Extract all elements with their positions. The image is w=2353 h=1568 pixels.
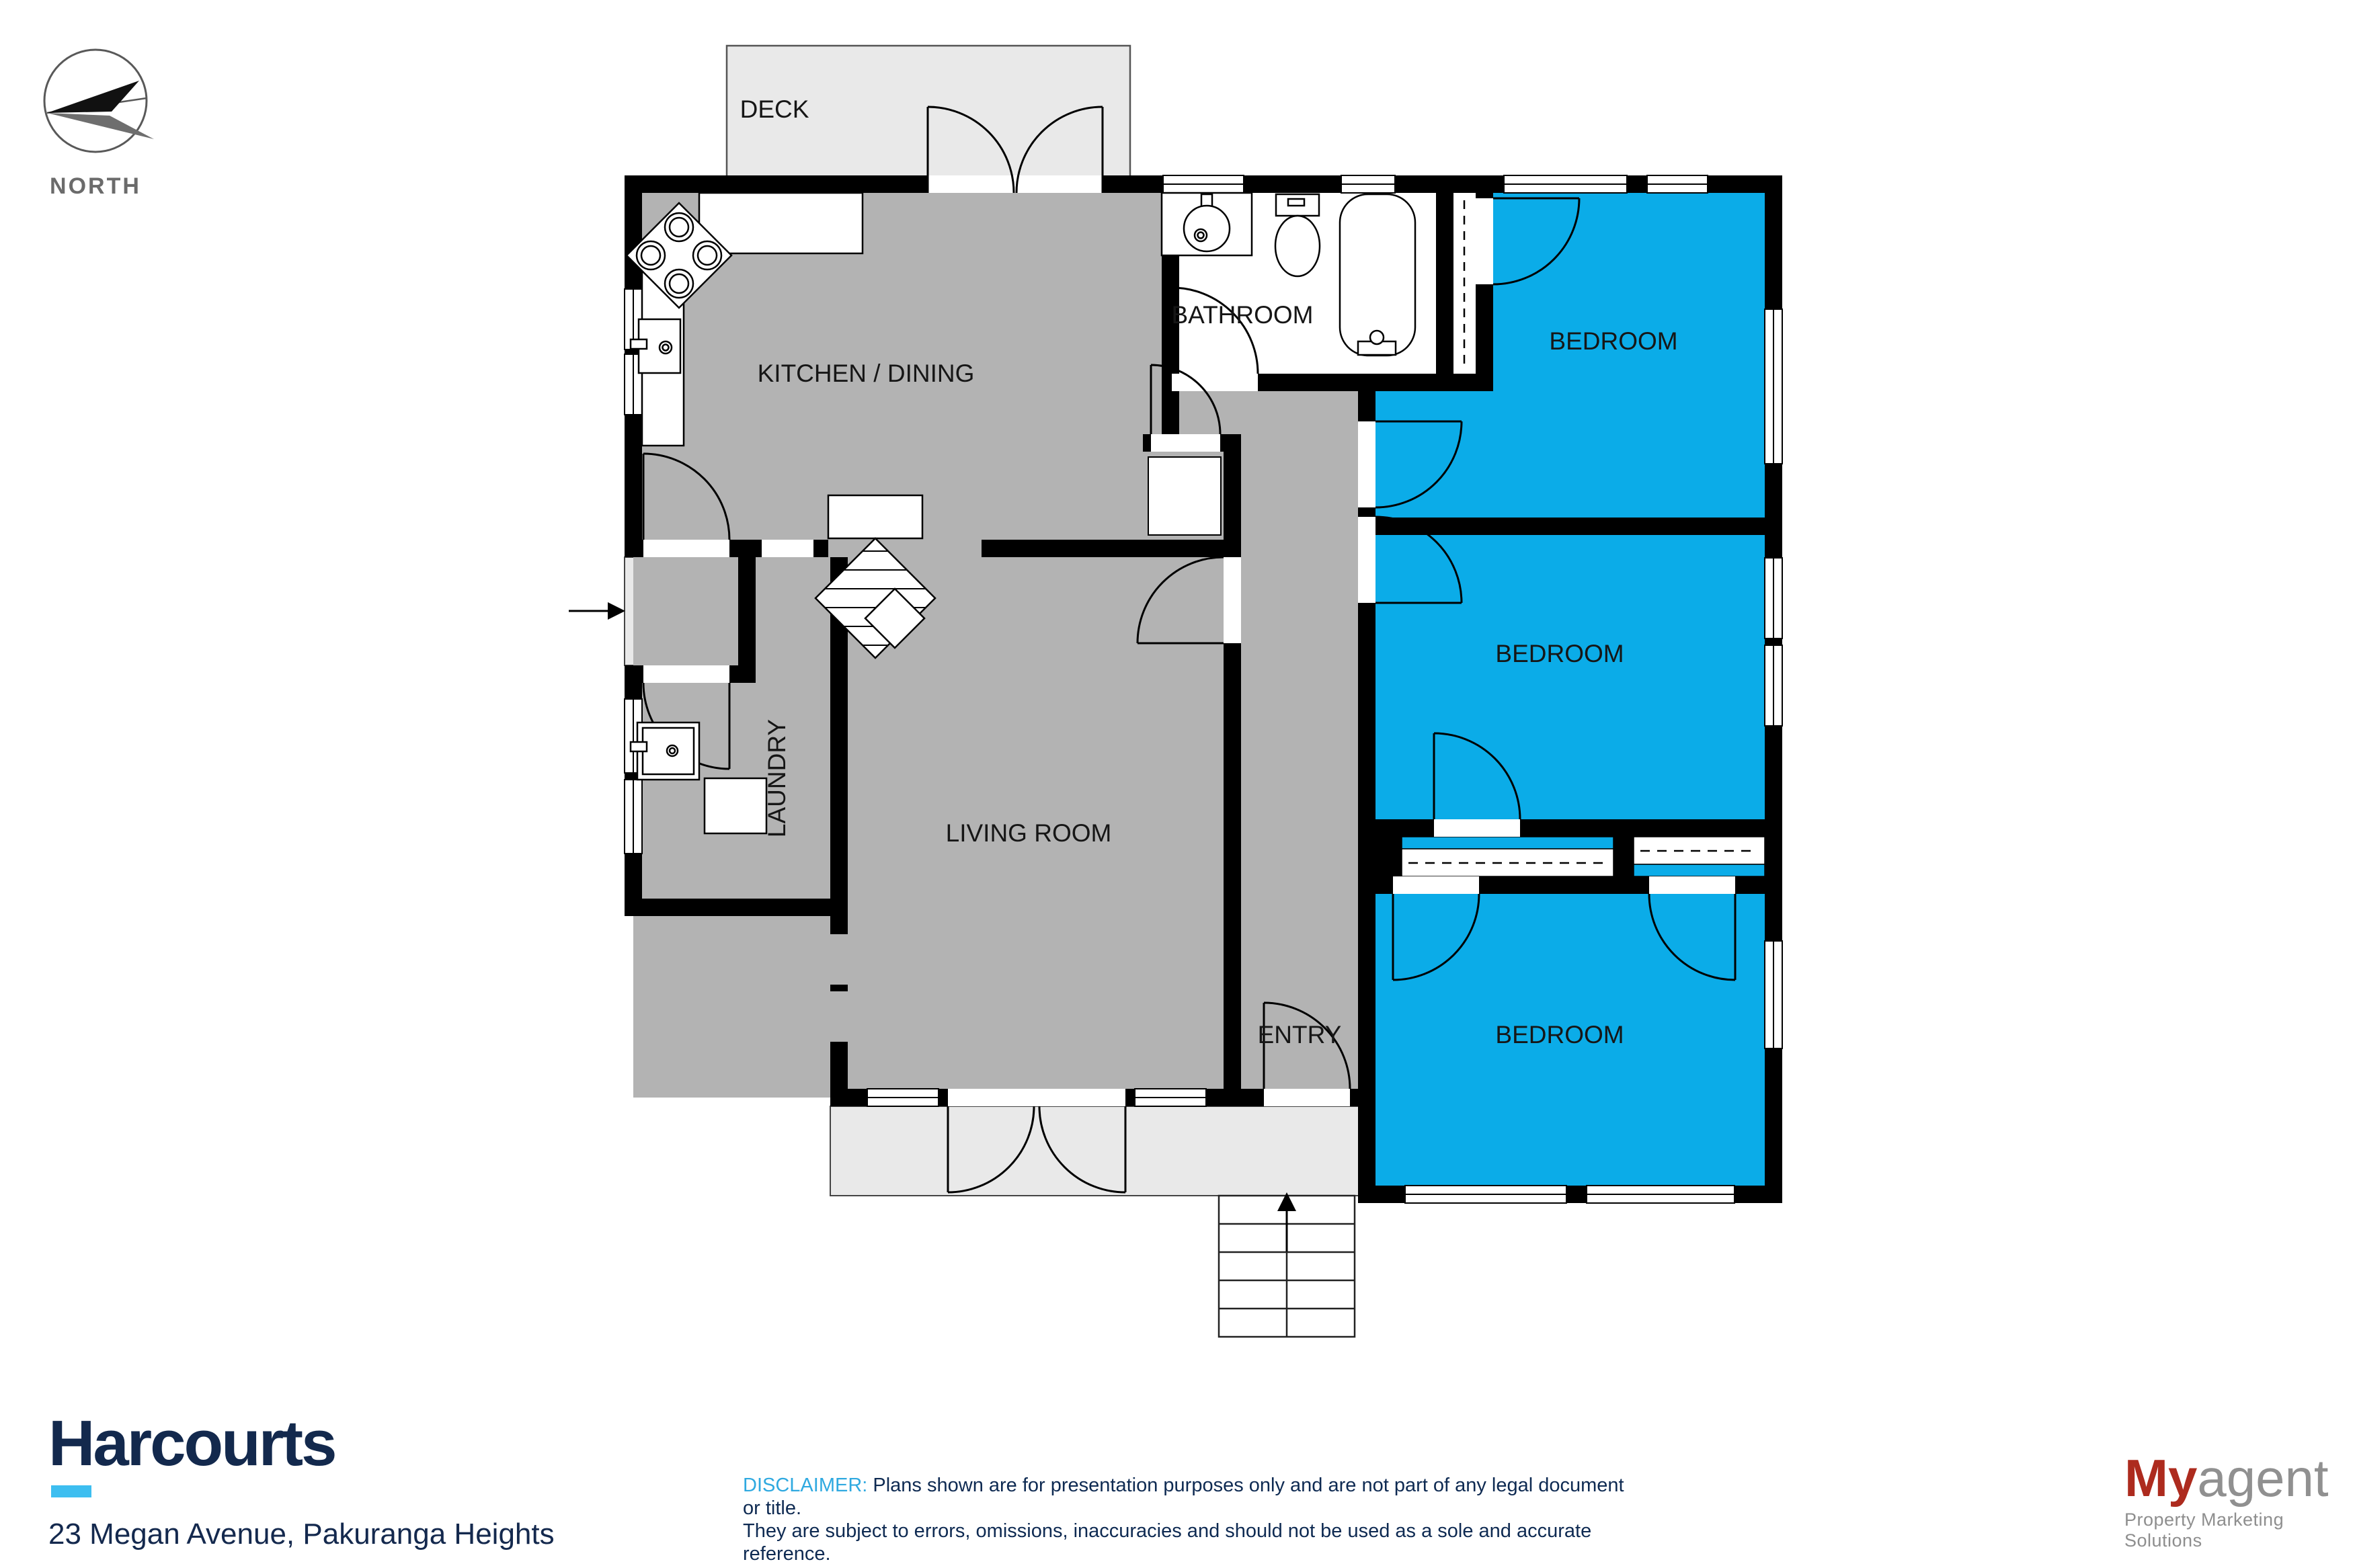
laundry-tap bbox=[631, 742, 647, 751]
disclaimer-line-1: DISCLAIMER: Plans shown are for presenta… bbox=[743, 1474, 1630, 1520]
harcourts-logo: Harcourts bbox=[48, 1411, 555, 1476]
north-compass: NORTH bbox=[44, 50, 154, 199]
disclaimer-label: DISCLAIMER: bbox=[743, 1475, 867, 1496]
kitchen-sink-tap bbox=[631, 339, 647, 349]
toilet-button bbox=[1288, 199, 1304, 206]
living-room-label: LIVING ROOM bbox=[946, 819, 1112, 847]
kitchen-counter-top bbox=[699, 193, 863, 253]
myagent-accent: My bbox=[2124, 1448, 2197, 1508]
washing-machine bbox=[705, 778, 766, 833]
myagent-logo: Myagent Property Marketing Solutions bbox=[2124, 1452, 2353, 1551]
myagent-wordmark: Myagent bbox=[2124, 1452, 2353, 1504]
front-porch bbox=[830, 1106, 1375, 1196]
vanity-basin bbox=[1184, 206, 1230, 251]
hot-water-cupboard bbox=[1148, 457, 1221, 535]
myagent-rest: agent bbox=[2197, 1448, 2328, 1508]
disclaimer: DISCLAIMER: Plans shown are for presenta… bbox=[743, 1474, 1630, 1568]
laundry-label: LAUNDRY bbox=[763, 719, 791, 837]
bathroom-label: BATHROOM bbox=[1171, 301, 1313, 329]
floorplan-drawing: NORTH bbox=[0, 0, 2353, 1568]
myagent-tagline: Property Marketing Solutions bbox=[2124, 1510, 2353, 1551]
deck-label: DECK bbox=[740, 95, 809, 123]
floorplan-page: NORTH bbox=[0, 0, 2353, 1568]
bedroom2-label: BEDROOM bbox=[1495, 640, 1624, 667]
kitchen-label: KITCHEN / DINING bbox=[758, 360, 975, 387]
property-address: 23 Megan Avenue, Pakuranga Heights bbox=[48, 1518, 555, 1551]
disclaimer-line-3: Interested parties should make their own… bbox=[743, 1565, 1630, 1568]
bedroom3-label: BEDROOM bbox=[1495, 1021, 1624, 1048]
harcourts-underline bbox=[51, 1485, 91, 1497]
wardrobe-left-slider bbox=[1402, 837, 1613, 849]
wardrobe-right-slider bbox=[1634, 864, 1765, 876]
bedroom1-label: BEDROOM bbox=[1549, 327, 1677, 355]
north-label: NORTH bbox=[50, 173, 141, 199]
disclaimer-line-2: They are subject to errors, omissions, i… bbox=[743, 1520, 1630, 1565]
toilet-bowl bbox=[1275, 216, 1320, 276]
disclaimer-text-1: Plans shown are for presentation purpose… bbox=[743, 1475, 1624, 1519]
harcourts-brand: Harcourts 23 Megan Avenue, Pakuranga Hei… bbox=[48, 1411, 555, 1551]
side-entry-arrow bbox=[569, 602, 625, 620]
entry-label: ENTRY bbox=[1258, 1021, 1342, 1048]
